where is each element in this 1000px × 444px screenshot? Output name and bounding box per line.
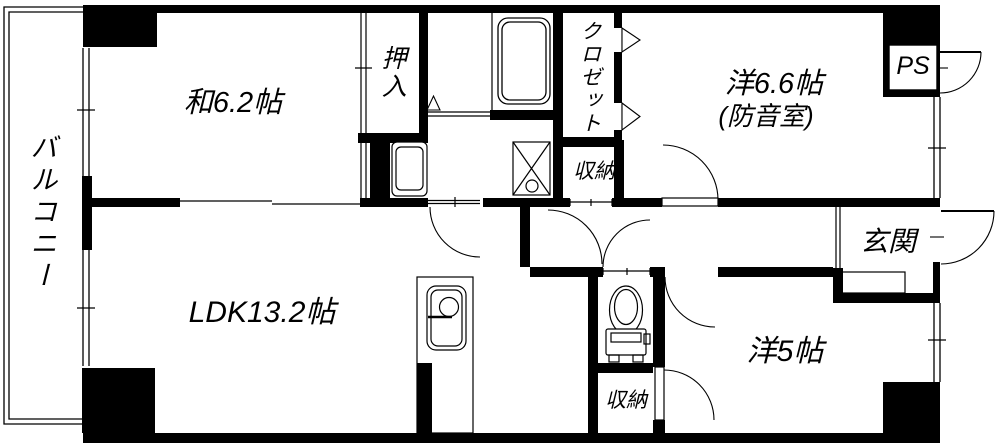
western-room-66-label: 洋6.6帖 [674, 69, 874, 99]
vanity-sink [392, 142, 427, 196]
storage-lower-label: 収納 [576, 390, 676, 412]
balcony-label: バルコニー [27, 133, 55, 293]
storage-upper-label: 収納 [544, 161, 644, 183]
japanese-room-label: 和6.2帖 [133, 88, 333, 118]
ldk-label: LDK13.2帖 [142, 297, 382, 329]
toilet [606, 286, 650, 362]
kitchen-sink [427, 286, 466, 350]
floor-plan: バルコニー 和6.2帖 押入 クロゼット 収納 洋6.6帖 (防音室) PS 玄… [0, 0, 1000, 444]
bathtub [498, 18, 550, 104]
bath-door-triangle [427, 96, 440, 110]
entrance-step [838, 272, 905, 293]
floor-plan-drawing [0, 0, 1000, 444]
pipe-space-label: PS [888, 53, 938, 79]
closet-label: クロゼット [578, 20, 600, 135]
sliding-doors [180, 13, 840, 275]
entrance-label: 玄関 [838, 227, 938, 256]
western-room-5-label: 洋5帖 [685, 336, 885, 368]
soundproof-note-label: (防音室) [666, 103, 866, 130]
oshiire-label: 押入 [379, 45, 405, 101]
